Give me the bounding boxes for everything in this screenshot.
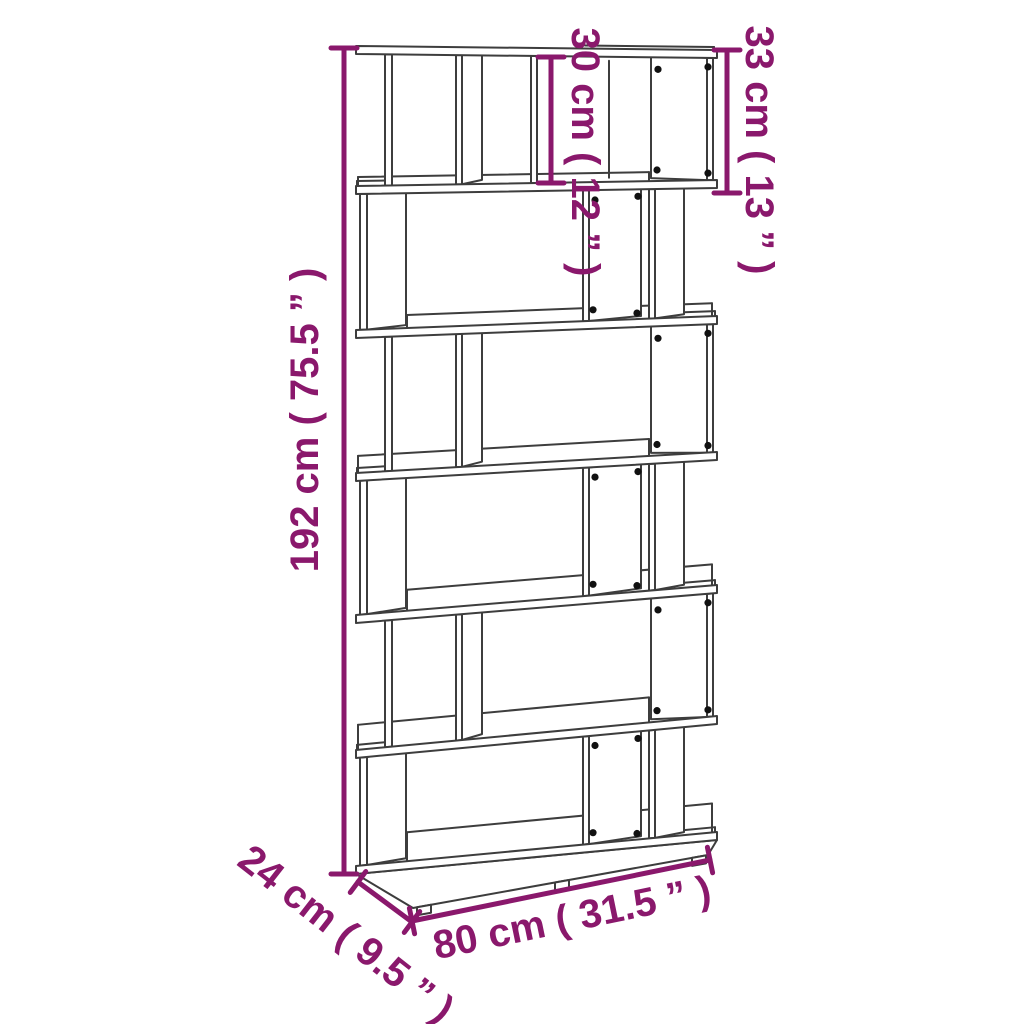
bookcase-dimension-diagram: 192 cm ( 75.5 ” ) 30 cm ( 12 ” ) 33 cm (…: [0, 0, 1024, 1024]
dimension-diagram-page: 192 cm ( 75.5 ” ) 30 cm ( 12 ” ) 33 cm (…: [0, 0, 1024, 1024]
top-section-height-dimension-label: 33 cm ( 13 ” ): [737, 25, 781, 274]
compartment-height-dimension-label: 30 cm ( 12 ” ): [563, 27, 607, 276]
height-dimension-label: 192 cm ( 75.5 ” ): [283, 268, 327, 573]
